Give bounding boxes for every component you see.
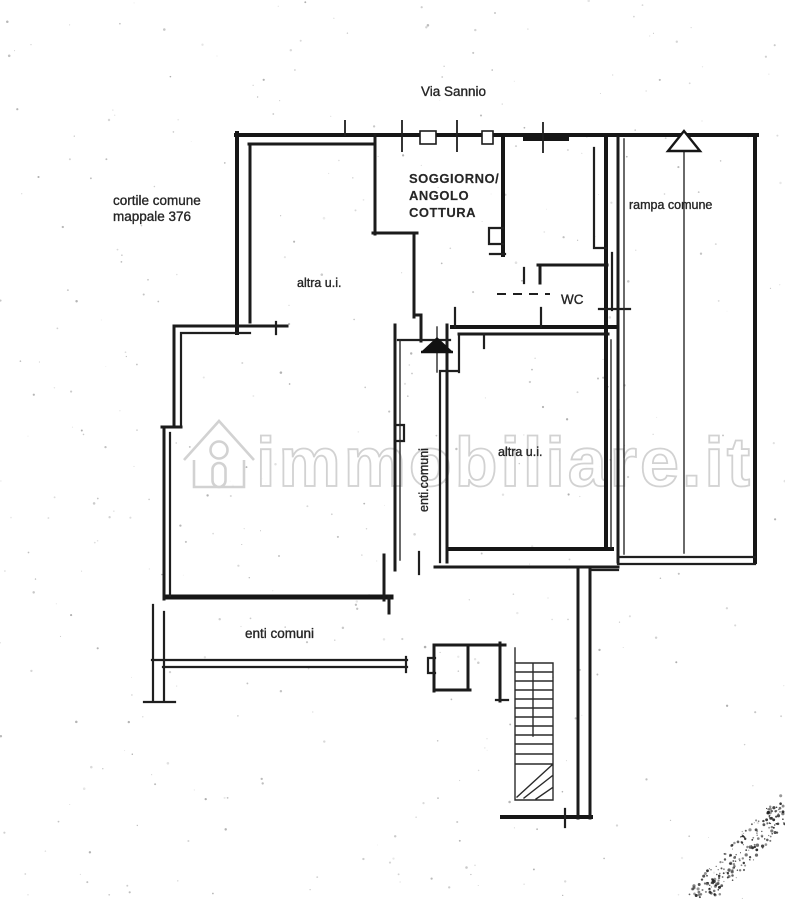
label-altra-ui-right: altra u.i.: [498, 445, 542, 459]
staircase: [515, 648, 553, 800]
label-wc: WC: [561, 292, 584, 307]
label-soggiorno-line1: SOGGIORNO/: [409, 171, 499, 186]
corner-ellipse-decoration: [670, 834, 785, 900]
label-via-sannio: Via Sannio: [421, 84, 486, 99]
label-rampa-comune: rampa comune: [629, 198, 712, 212]
corner-noise: [689, 794, 785, 898]
wall-opening: [482, 131, 493, 144]
label-enti-comuni-vertical: enti.comuni: [417, 448, 431, 512]
wall-opening: [420, 131, 436, 144]
label-soggiorno-line3: COTTURA: [409, 205, 476, 220]
watermark-text: immobiliare.it: [256, 423, 753, 501]
label-soggiorno-line2: ANGOLO: [409, 188, 469, 203]
house-icon: [184, 421, 254, 487]
floor-plan-canvas: immobiliare.it Via Sann: [0, 0, 785, 900]
label-cortile-line1: cortile comune: [113, 193, 201, 208]
label-cortile-line2: mappale 376: [113, 209, 191, 224]
watermark: immobiliare.it: [184, 421, 753, 501]
floor-plan-page: immobiliare.it Via Sann: [0, 0, 785, 900]
label-enti-comuni-bottom: enti comuni: [245, 626, 314, 641]
label-altra-ui-upper: altra u.i.: [297, 276, 341, 290]
